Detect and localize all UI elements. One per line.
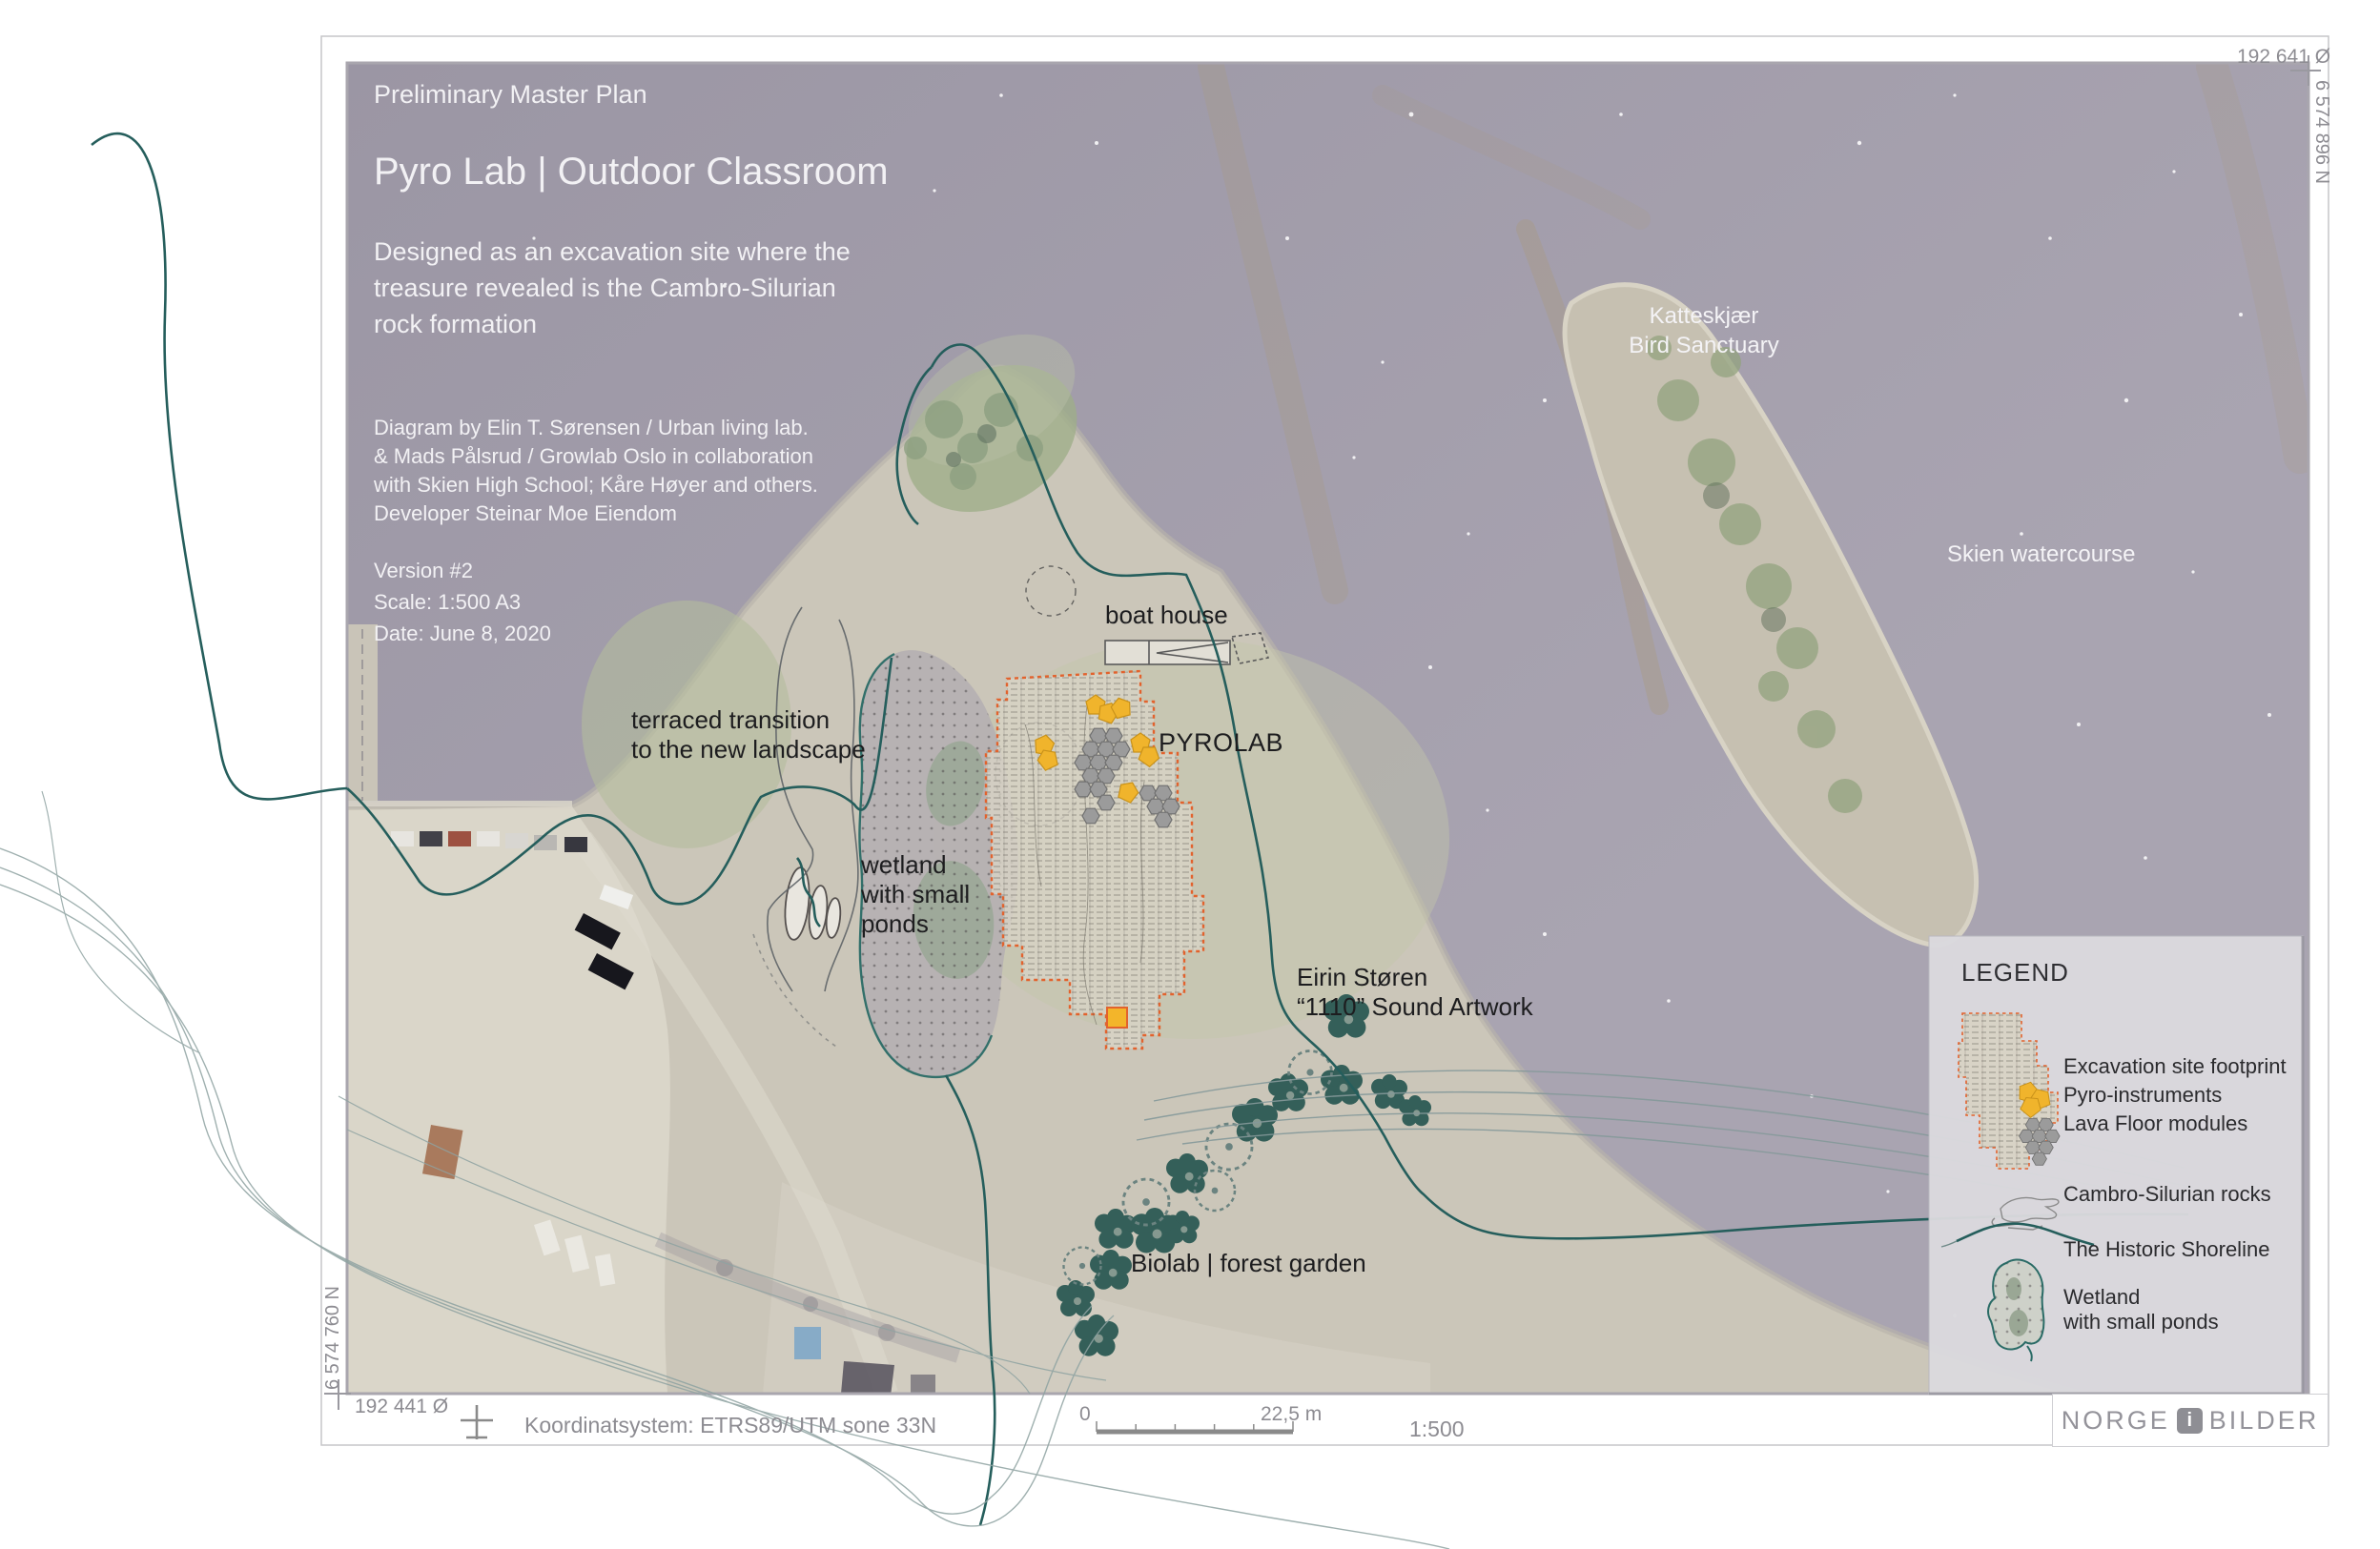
coord-top-right: 192 641 Ø [2237, 46, 2330, 69]
label-boat-house: boat house [1105, 601, 1228, 630]
scale-zero-label: 0 [1079, 1403, 1091, 1426]
legend-item-lava: Lava Floor modules [2063, 1111, 2247, 1136]
credits: Diagram by Elin T. Sørensen / Urban livi… [374, 414, 946, 528]
label-watercourse: Skien watercourse [1947, 540, 2135, 569]
description-line: treasure revealed is the Cambro-Silurian [374, 270, 946, 306]
legend-item-wetland: Wetland with small ponds [2063, 1285, 2219, 1335]
version-line: Scale: 1:500 A3 [374, 586, 946, 618]
logo-norge: NORGE [2062, 1406, 2170, 1436]
label-bird-sanctuary: Katteskjær Bird Sanctuary [1585, 301, 1823, 360]
logo-i-icon: i [2177, 1408, 2203, 1434]
version-line: Version #2 [374, 555, 946, 586]
logo-bilder: BILDER [2209, 1406, 2320, 1436]
coord-left-vertical: 6 574 760 N [322, 1286, 344, 1390]
page-title: Pyro Lab | Outdoor Classroom [374, 151, 946, 194]
coord-bottom-left: 192 441 Ø [355, 1396, 448, 1418]
site-plan-graphic [0, 0, 2380, 1549]
version-line: Date: June 8, 2020 [374, 618, 946, 649]
description-line: rock formation [374, 306, 946, 342]
credit-line: with Skien High School; Kåre Høyer and o… [374, 471, 946, 499]
coord-right-vertical: 6 574 896 N [2310, 80, 2332, 184]
label-biolab: Biolab | forest garden [1131, 1249, 1366, 1278]
label-pyrolab: PYROLAB [1159, 728, 1283, 758]
scale-ratio-label: 1:500 [1409, 1417, 1465, 1442]
label-terraced-transition: terraced transition to the new landscape [631, 705, 866, 764]
plan-kicker: Preliminary Master Plan [374, 80, 946, 110]
version-info: Version #2 Scale: 1:500 A3 Date: June 8,… [374, 555, 946, 649]
legend-title: LEGEND [1961, 958, 2069, 988]
master-plan-page: { "header": { "kicker": "Preliminary Mas… [0, 0, 2380, 1549]
credit-line: & Mads Pålsrud / Growlab Oslo in collabo… [374, 442, 946, 471]
coordinate-system-label: Koordinatsystem: ETRS89/UTM sone 33N [524, 1413, 936, 1438]
plan-description: Designed as an excavation site where the… [374, 234, 946, 342]
label-wetland: wetland with small ponds [861, 850, 970, 939]
legend-item-pyro: Pyro-instruments [2063, 1083, 2222, 1108]
label-sound-artwork: Eirin Støren “1110” Sound Artwork [1297, 963, 1533, 1022]
legend-item-rocks: Cambro-Silurian rocks [2063, 1182, 2271, 1207]
credit-line: Diagram by Elin T. Sørensen / Urban livi… [374, 414, 946, 442]
norge-i-bilder-logo: NORGE i BILDER [2052, 1394, 2329, 1447]
legend-item-excavation: Excavation site footprint [2063, 1054, 2287, 1079]
credit-line: Developer Steinar Moe Eiendom [374, 499, 946, 528]
title-block: Preliminary Master Plan Pyro Lab | Outdo… [374, 80, 946, 649]
description-line: Designed as an excavation site where the [374, 234, 946, 270]
legend-item-shoreline: The Historic Shoreline [2063, 1237, 2269, 1262]
scale-distance-label: 22,5 m [1261, 1403, 1322, 1426]
